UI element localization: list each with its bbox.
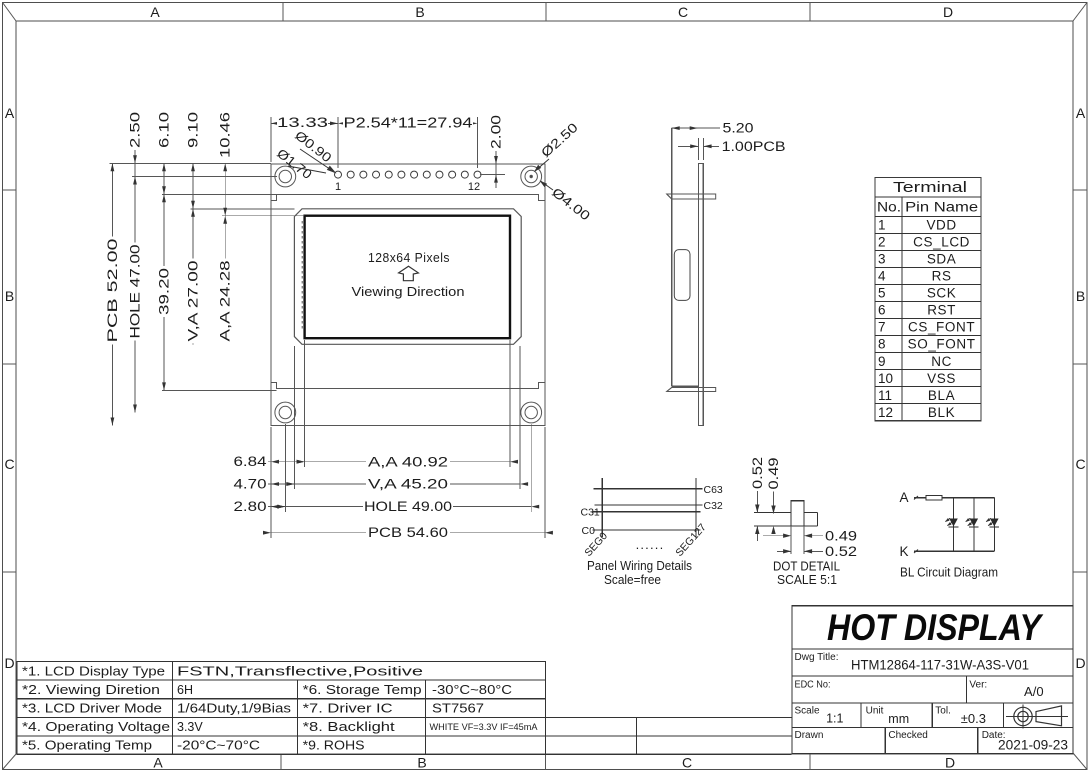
svg-text:Pin Name: Pin Name — [905, 200, 978, 215]
svg-text:Ver:: Ver: — [969, 680, 987, 691]
svg-text:*3. LCD Driver Mode: *3. LCD Driver Mode — [22, 702, 162, 716]
svg-text:1:1: 1:1 — [826, 712, 843, 726]
svg-text:No.: No. — [877, 200, 901, 215]
svg-text:Checked: Checked — [888, 730, 927, 741]
svg-text:CS_FONT: CS_FONT — [908, 320, 975, 335]
svg-text:RS: RS — [932, 269, 952, 284]
svg-text:HOLE 49.00: HOLE 49.00 — [364, 498, 452, 514]
svg-text:A: A — [900, 490, 909, 505]
svg-text:HTM12864-117-31W-A3S-V01: HTM12864-117-31W-A3S-V01 — [851, 657, 1029, 673]
svg-text:*6. Storage Temp: *6. Storage Temp — [303, 683, 422, 697]
svg-text:C0: C0 — [582, 525, 596, 537]
svg-text:Scale: Scale — [795, 706, 820, 717]
svg-text:2021-09-23: 2021-09-23 — [998, 738, 1068, 753]
svg-text:2.00: 2.00 — [488, 115, 503, 149]
svg-text:4.70: 4.70 — [234, 477, 267, 492]
svg-text:-30°C~80°C: -30°C~80°C — [432, 683, 512, 697]
svg-text:3: 3 — [878, 252, 886, 267]
svg-text:±0.3: ±0.3 — [961, 711, 986, 726]
svg-text:A: A — [153, 755, 163, 771]
svg-text:D: D — [1075, 655, 1085, 671]
svg-text:1/64Duty,1/9Bias: 1/64Duty,1/9Bias — [177, 702, 291, 716]
svg-text:ST7567: ST7567 — [432, 702, 484, 716]
svg-text:*1. LCD Display Type: *1. LCD Display Type — [22, 664, 165, 678]
svg-text:2.50: 2.50 — [127, 112, 142, 148]
svg-text:0.52: 0.52 — [750, 457, 765, 489]
svg-text:11: 11 — [878, 388, 892, 403]
svg-text:Viewing Direction: Viewing Direction — [352, 284, 465, 299]
svg-text:A: A — [1076, 105, 1086, 121]
svg-text:0.52: 0.52 — [825, 544, 857, 559]
svg-text:*7. Driver IC: *7. Driver IC — [303, 702, 393, 716]
svg-text:1: 1 — [878, 218, 886, 233]
svg-text:FSTN,Transflective,Positive: FSTN,Transflective,Positive — [177, 664, 423, 678]
svg-text:6.10: 6.10 — [156, 112, 171, 148]
svg-text:*4. Operating Voltage: *4. Operating Voltage — [22, 720, 170, 734]
svg-text:10.46: 10.46 — [218, 112, 233, 158]
svg-text:D: D — [945, 755, 955, 771]
svg-text:HOLE 47.00: HOLE 47.00 — [127, 244, 143, 338]
svg-text:RST: RST — [927, 303, 956, 318]
svg-text:VDD: VDD — [926, 218, 956, 233]
svg-text:V,A 27.00: V,A 27.00 — [185, 261, 200, 342]
svg-text:6: 6 — [878, 303, 886, 318]
svg-text:Terminal: Terminal — [893, 180, 967, 196]
svg-text:10: 10 — [878, 371, 893, 386]
svg-text:P2.54*11=27.94: P2.54*11=27.94 — [344, 116, 473, 132]
svg-text:C: C — [1075, 456, 1085, 472]
svg-text:SCALE 5:1: SCALE 5:1 — [777, 573, 837, 587]
svg-text:5: 5 — [878, 286, 886, 301]
svg-text:B: B — [415, 4, 424, 20]
svg-text:A,A 40.92: A,A 40.92 — [368, 454, 448, 470]
svg-text:EDC No:: EDC No: — [795, 680, 831, 691]
svg-text:2: 2 — [878, 235, 886, 250]
svg-text:BL Circuit Diagram: BL Circuit Diagram — [900, 566, 998, 580]
svg-text:C63: C63 — [704, 484, 723, 496]
svg-text:WHITE VF=3.3V IF=45mA: WHITE VF=3.3V IF=45mA — [430, 722, 538, 732]
svg-text:B: B — [1076, 288, 1085, 304]
svg-text:Dwg Title:: Dwg Title: — [795, 652, 839, 663]
svg-text:7: 7 — [878, 320, 886, 335]
svg-text:SO_FONT: SO_FONT — [908, 337, 976, 352]
svg-text:C: C — [682, 755, 692, 771]
svg-text:BLK: BLK — [928, 405, 955, 420]
svg-text:A,A 24.28: A,A 24.28 — [218, 261, 233, 342]
svg-text:39.20: 39.20 — [156, 268, 171, 315]
svg-text:C32: C32 — [704, 500, 723, 512]
svg-text:5.20: 5.20 — [723, 121, 754, 136]
svg-text:4: 4 — [878, 269, 886, 284]
svg-text:A/0: A/0 — [1024, 684, 1044, 699]
svg-text:V,A 45.20: V,A 45.20 — [368, 476, 448, 492]
svg-text:BLA: BLA — [928, 388, 955, 403]
svg-text:*2. Viewing Diretion: *2. Viewing Diretion — [22, 683, 160, 697]
svg-text:SDA: SDA — [927, 252, 957, 267]
svg-text:Tol.: Tol. — [935, 706, 951, 717]
svg-text:mm: mm — [888, 712, 909, 726]
svg-text:B: B — [5, 288, 14, 304]
svg-text:C31: C31 — [581, 507, 600, 519]
svg-text:D: D — [4, 655, 14, 671]
svg-text:VSS: VSS — [927, 371, 956, 386]
svg-text:9.10: 9.10 — [185, 112, 200, 148]
svg-text:6.84: 6.84 — [234, 454, 268, 469]
svg-text:NC: NC — [931, 354, 952, 369]
svg-text:3.3V: 3.3V — [177, 720, 203, 734]
svg-text:SCK: SCK — [927, 286, 957, 301]
svg-text:......: ...... — [636, 537, 665, 552]
svg-text:*5. Operating Temp: *5. Operating Temp — [22, 739, 152, 753]
svg-text:*8. Backlight: *8. Backlight — [303, 720, 396, 734]
svg-text:8: 8 — [878, 337, 886, 352]
svg-text:DOT DETAIL: DOT DETAIL — [773, 560, 840, 574]
svg-text:C: C — [4, 456, 14, 472]
svg-text:1.00PCB: 1.00PCB — [722, 139, 786, 154]
svg-text:PCB 52.00: PCB 52.00 — [104, 238, 120, 342]
svg-text:Panel Wiring Details: Panel Wiring Details — [587, 559, 692, 573]
svg-text:6H: 6H — [177, 683, 193, 697]
svg-text:D: D — [943, 4, 953, 20]
svg-text:0.49: 0.49 — [825, 529, 857, 544]
svg-text:Drawn: Drawn — [795, 730, 824, 741]
svg-text:128x64 Pixels: 128x64 Pixels — [368, 251, 450, 265]
svg-text:A: A — [150, 4, 160, 20]
svg-text:C: C — [678, 4, 688, 20]
svg-text:PCB 54.60: PCB 54.60 — [368, 524, 448, 540]
svg-text:Scale=free: Scale=free — [604, 573, 661, 587]
svg-text:12: 12 — [878, 405, 893, 420]
svg-text:1: 1 — [335, 181, 341, 193]
svg-text:*9. ROHS: *9. ROHS — [303, 739, 365, 753]
svg-text:9: 9 — [878, 354, 886, 369]
svg-text:K: K — [900, 544, 909, 559]
svg-text:B: B — [417, 755, 426, 771]
svg-text:Unit: Unit — [866, 706, 884, 717]
svg-text:A: A — [5, 105, 15, 121]
svg-text:CS_LCD: CS_LCD — [913, 235, 970, 250]
svg-text:0.49: 0.49 — [766, 458, 781, 490]
svg-text:2.80: 2.80 — [234, 499, 267, 514]
svg-text:12: 12 — [468, 181, 480, 193]
svg-text:-20°C~70°C: -20°C~70°C — [177, 739, 260, 753]
svg-text:HOT DISPLAY: HOT DISPLAY — [827, 607, 1044, 648]
